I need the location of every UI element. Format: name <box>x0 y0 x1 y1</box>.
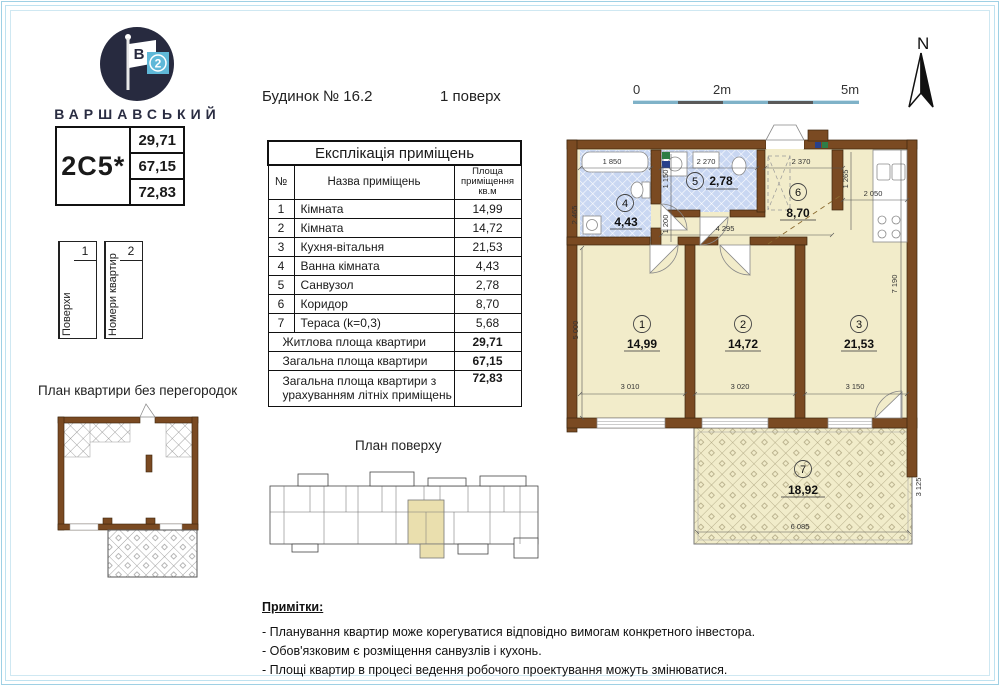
floor-plan-sheet: В 2 ВАРШАВСЬКИЙ 2C5* 29,71 67,15 72,83 П… <box>0 0 1000 686</box>
toilet-icon <box>631 182 643 198</box>
floor-overview-plan <box>262 452 547 567</box>
floors-value: 1 <box>74 242 96 261</box>
no-partitions-title: План квартири без перегородок <box>38 383 237 398</box>
north-label: N <box>917 34 929 53</box>
unit-spec-table: 2C5* 29,71 67,15 72,83 <box>55 126 185 206</box>
unit-total-with-summer: 72,83 <box>130 179 184 205</box>
summary-row: Житлова площа квартири29,71 <box>268 332 521 351</box>
note-item: - Обов'язковим є розміщення санвузлів і … <box>262 642 782 661</box>
vent-icon <box>815 142 821 148</box>
floors-table: Поверхи 1 <box>58 241 97 339</box>
unit-code: 2C5* <box>56 127 130 205</box>
svg-text:4,43: 4,43 <box>614 215 638 229</box>
apartments-label: Номери квартир <box>105 242 120 338</box>
svg-text:7 190: 7 190 <box>890 275 899 294</box>
table-row: 4Ванна кімната4,43 <box>268 256 521 275</box>
apartments-table: Номери квартир 2 <box>104 241 143 339</box>
mini-entrance-icon <box>140 404 155 417</box>
apartment-plan: 1 850 2 270 2 370 2 050 4 295 2 465 1 15… <box>563 124 963 558</box>
svg-text:1: 1 <box>639 319 645 331</box>
svg-text:1 850: 1 850 <box>603 157 622 166</box>
north-arrow: N <box>901 33 947 123</box>
svg-text:2 465: 2 465 <box>570 206 579 225</box>
building-title: Будинок № 16.2 <box>262 88 372 105</box>
floors-label: Поверхи <box>59 242 74 338</box>
summary-row: Загальна площа квартири67,15 <box>268 351 521 370</box>
svg-text:5: 5 <box>692 176 698 188</box>
explication-table: Експлікація приміщень № Назва приміщень … <box>267 140 522 407</box>
entrance-opening <box>766 140 804 149</box>
windows <box>597 418 872 428</box>
scale-bar: 0 2m 5m <box>633 82 859 104</box>
washer-icon <box>583 216 601 234</box>
svg-text:2 370: 2 370 <box>792 157 811 166</box>
vent-icon <box>662 161 670 168</box>
notes: Примітки: - Планування квартир може коре… <box>262 598 782 680</box>
table-row: 1Кімната14,99 <box>268 199 521 218</box>
svg-text:3: 3 <box>856 319 862 331</box>
brand-name: ВАРШАВСЬКИЙ <box>30 106 245 122</box>
svg-text:3 020: 3 020 <box>731 382 750 391</box>
note-item: - Планування квартир може корегуватися в… <box>262 623 782 642</box>
svg-text:1 265: 1 265 <box>841 170 850 189</box>
svg-text:3 150: 3 150 <box>846 382 865 391</box>
svg-text:2 270: 2 270 <box>697 157 716 166</box>
svg-text:7: 7 <box>800 464 806 476</box>
svg-text:21,53: 21,53 <box>844 337 874 351</box>
svg-text:6: 6 <box>795 187 801 199</box>
scale-0: 0 <box>633 82 640 97</box>
svg-text:5 000: 5 000 <box>571 321 580 340</box>
logo-number: 2 <box>155 57 162 71</box>
table-row: 7Тераса (k=0,3)5,68 <box>268 313 521 332</box>
floor-title: 1 поверх <box>440 88 501 105</box>
vent-icon <box>822 142 828 148</box>
svg-text:3 010: 3 010 <box>621 382 640 391</box>
table-row: 3Кухня-вітальня21,53 <box>268 237 521 256</box>
svg-text:2,78: 2,78 <box>709 174 733 188</box>
table-row: 6Коридор8,70 <box>268 294 521 313</box>
brand-logo: В 2 <box>99 25 175 103</box>
mini-terrace <box>108 530 197 577</box>
svg-text:6 085: 6 085 <box>791 522 810 531</box>
logo-flag-letter: В <box>134 46 145 63</box>
svg-text:4 295: 4 295 <box>716 224 735 233</box>
compass-needle-icon <box>909 53 921 107</box>
entrance-door-icon <box>766 125 804 140</box>
scale-2m: 2m <box>713 82 731 97</box>
svg-text:18,92: 18,92 <box>788 483 818 497</box>
col-num: № <box>268 165 294 199</box>
svg-text:4: 4 <box>622 198 628 210</box>
table-row: 2Кімната14,72 <box>268 218 521 237</box>
notes-title: Примітки: <box>262 598 782 617</box>
unit-living-area: 29,71 <box>130 127 184 153</box>
kitchen-sink-icon <box>877 164 890 180</box>
explication-title: Експлікація приміщень <box>268 141 521 165</box>
no-partitions-plan <box>45 400 235 600</box>
svg-text:2: 2 <box>740 319 746 331</box>
floor-plan-title: План поверху <box>355 438 442 453</box>
svg-text:1 150: 1 150 <box>661 170 670 189</box>
svg-text:8,70: 8,70 <box>786 206 810 220</box>
note-item: - Площі квартир в процесі ведення робочо… <box>262 661 782 680</box>
svg-text:2 050: 2 050 <box>864 189 883 198</box>
col-name: Назва приміщень <box>294 165 454 199</box>
table-row: 5Санвузол2,78 <box>268 275 521 294</box>
scale-bar-segments <box>633 100 859 104</box>
wc-toilet-icon <box>732 157 746 175</box>
vent-icon <box>662 152 670 159</box>
unit-total-area: 67,15 <box>130 153 184 179</box>
svg-text:3 125: 3 125 <box>914 478 923 497</box>
scale-5m: 5m <box>841 82 859 97</box>
apartments-value: 2 <box>120 242 142 261</box>
svg-text:1 200: 1 200 <box>661 215 670 234</box>
svg-text:14,99: 14,99 <box>627 337 657 351</box>
summary-row: Загальна площа квартири з урахуванням лі… <box>268 370 521 406</box>
svg-text:14,72: 14,72 <box>728 337 758 351</box>
col-area: Площа приміщення кв.м <box>454 165 521 199</box>
